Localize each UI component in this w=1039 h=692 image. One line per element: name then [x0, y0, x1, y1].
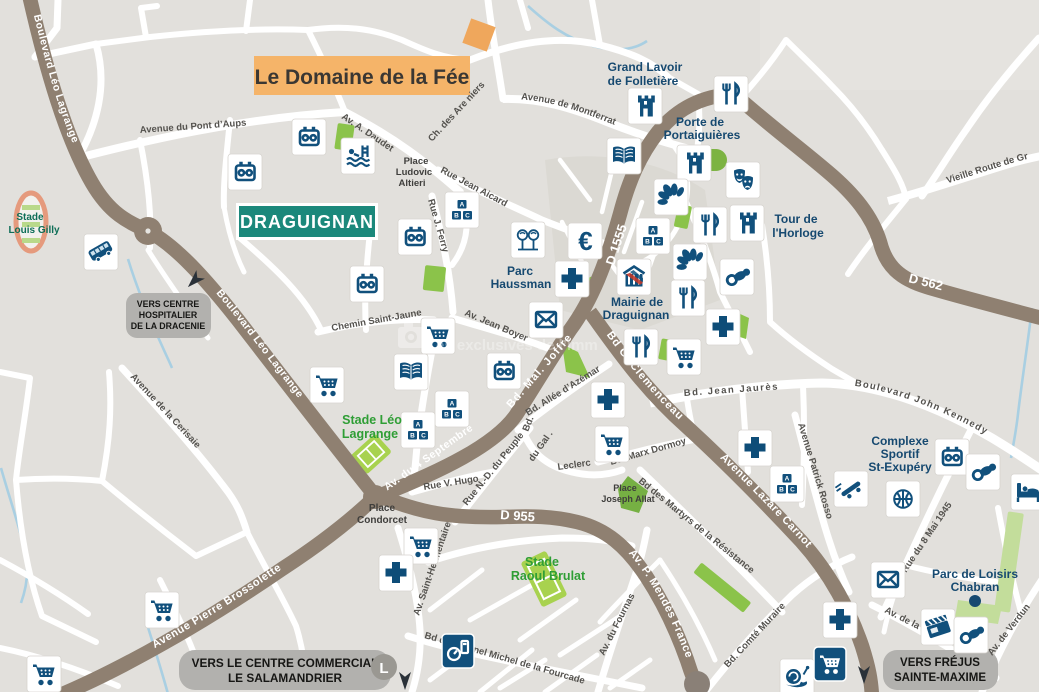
svg-text:Condorcet: Condorcet — [357, 515, 408, 526]
svg-text:Place: Place — [613, 483, 637, 493]
svg-text:Ludovic: Ludovic — [396, 167, 432, 178]
svg-text:Stade: Stade — [525, 555, 559, 569]
svg-text:Porte de: Porte de — [676, 115, 724, 129]
svg-text:HOSPITALIER: HOSPITALIER — [139, 310, 198, 320]
svg-text:VERS LE CENTRE COMMERCIAL: VERS LE CENTRE COMMERCIAL — [192, 656, 379, 670]
svg-text:St-Exupéry: St-Exupéry — [868, 460, 932, 474]
svg-text:VERS FRÉJUS: VERS FRÉJUS — [900, 656, 980, 669]
svg-text:Place: Place — [369, 503, 396, 514]
svg-text:Place: Place — [404, 156, 429, 167]
svg-text:D 955: D 955 — [500, 507, 536, 524]
svg-text:Chabran: Chabran — [951, 580, 1000, 594]
svg-text:Complexe: Complexe — [871, 434, 929, 448]
svg-text:Louis Gilly: Louis Gilly — [8, 225, 60, 236]
svg-text:Joseph Allat: Joseph Allat — [601, 494, 654, 504]
svg-text:Haussman: Haussman — [491, 277, 552, 291]
svg-text:es exclusives de l’imm: es exclusives de l’imm — [436, 337, 598, 354]
svg-text:DE LA DRACENIE: DE LA DRACENIE — [131, 321, 206, 331]
svg-text:Grand Lavoir: Grand Lavoir — [608, 60, 683, 74]
svg-text:L: L — [379, 660, 388, 677]
svg-text:Lagrange: Lagrange — [342, 427, 398, 441]
svg-text:l'Horloge: l'Horloge — [772, 226, 824, 240]
svg-text:Sportif: Sportif — [881, 447, 921, 461]
svg-text:de Folletière: de Folletière — [608, 74, 679, 88]
svg-text:LE SALAMANDRIER: LE SALAMANDRIER — [228, 671, 343, 685]
svg-text:SAINTE-MAXIME: SAINTE-MAXIME — [894, 672, 986, 684]
svg-text:Stade Léo: Stade Léo — [342, 413, 402, 427]
svg-text:Parc: Parc — [507, 264, 533, 278]
svg-text:DRAGUIGNAN: DRAGUIGNAN — [240, 212, 374, 232]
svg-text:VERS CENTRE: VERS CENTRE — [137, 299, 200, 309]
svg-text:Portaiguières: Portaiguières — [664, 128, 741, 142]
svg-text:Stade: Stade — [16, 212, 44, 223]
svg-text:Le Domaine de la Fée: Le Domaine de la Fée — [255, 66, 470, 89]
svg-text:Raoul Brulat: Raoul Brulat — [511, 569, 586, 583]
svg-text:Draguignan: Draguignan — [603, 308, 670, 322]
svg-text:Tour de: Tour de — [774, 212, 817, 226]
svg-text:Mairie de: Mairie de — [611, 295, 663, 309]
svg-text:Parc de Loisirs: Parc de Loisirs — [932, 567, 1018, 581]
svg-text:Altieri: Altieri — [399, 178, 426, 189]
